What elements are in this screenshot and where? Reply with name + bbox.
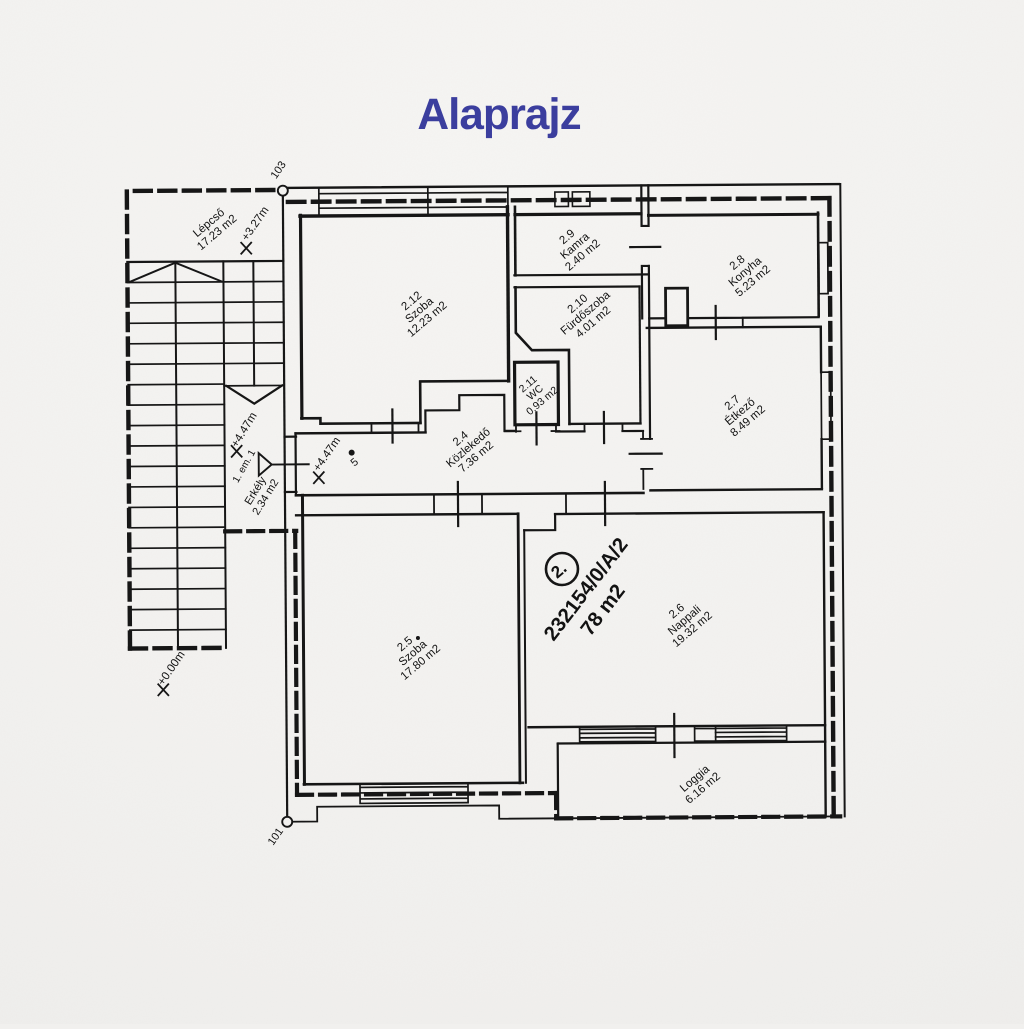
svg-text:2.11WC0.93 m2: 2.11WC0.93 m2: [510, 367, 561, 418]
svg-text:2.8Konyha5.23 m2: 2.8Konyha5.23 m2: [718, 245, 773, 299]
svg-text:2.4Közlekedő7.36 m2: 2.4Közlekedő7.36 m2: [437, 417, 501, 479]
svg-text:2.10Fürdőszoba4.01 m2: 2.10Fürdőszoba4.01 m2: [551, 280, 621, 347]
svg-text:2.7Étkező8.49 m2: 2.7Étkező8.49 m2: [713, 385, 768, 439]
svg-text:2.9Kamra2.40 m2: 2.9Kamra2.40 m2: [548, 219, 603, 273]
svg-text:Erkély2.34 m2: Erkély2.34 m2: [240, 471, 281, 517]
svg-text:103: 103: [269, 159, 289, 181]
svg-text:2.: 2.: [547, 558, 570, 582]
svg-text:+3.27m: +3.27m: [240, 205, 272, 244]
svg-text:+4.47m: +4.47m: [311, 435, 343, 474]
svg-text:Alaprajz: Alaprajz: [417, 90, 580, 139]
svg-text:Loggia6.16 m2: Loggia6.16 m2: [675, 761, 723, 807]
svg-text:5: 5: [349, 456, 361, 469]
svg-text:+4.47m: +4.47m: [229, 411, 259, 450]
svg-text:101: 101: [266, 826, 286, 848]
svg-text:2.12Szoba12.23 m2: 2.12Szoba12.23 m2: [390, 281, 450, 339]
svg-text:2.5Szoba17.80 m2: 2.5Szoba17.80 m2: [383, 624, 443, 682]
svg-text:2.6Nappali19.32 m2: 2.6Nappali19.32 m2: [655, 591, 715, 649]
svg-text:Lépcső17.23 m2: Lépcső17.23 m2: [187, 203, 239, 253]
svg-text:+0.00m: +0.00m: [156, 649, 188, 688]
